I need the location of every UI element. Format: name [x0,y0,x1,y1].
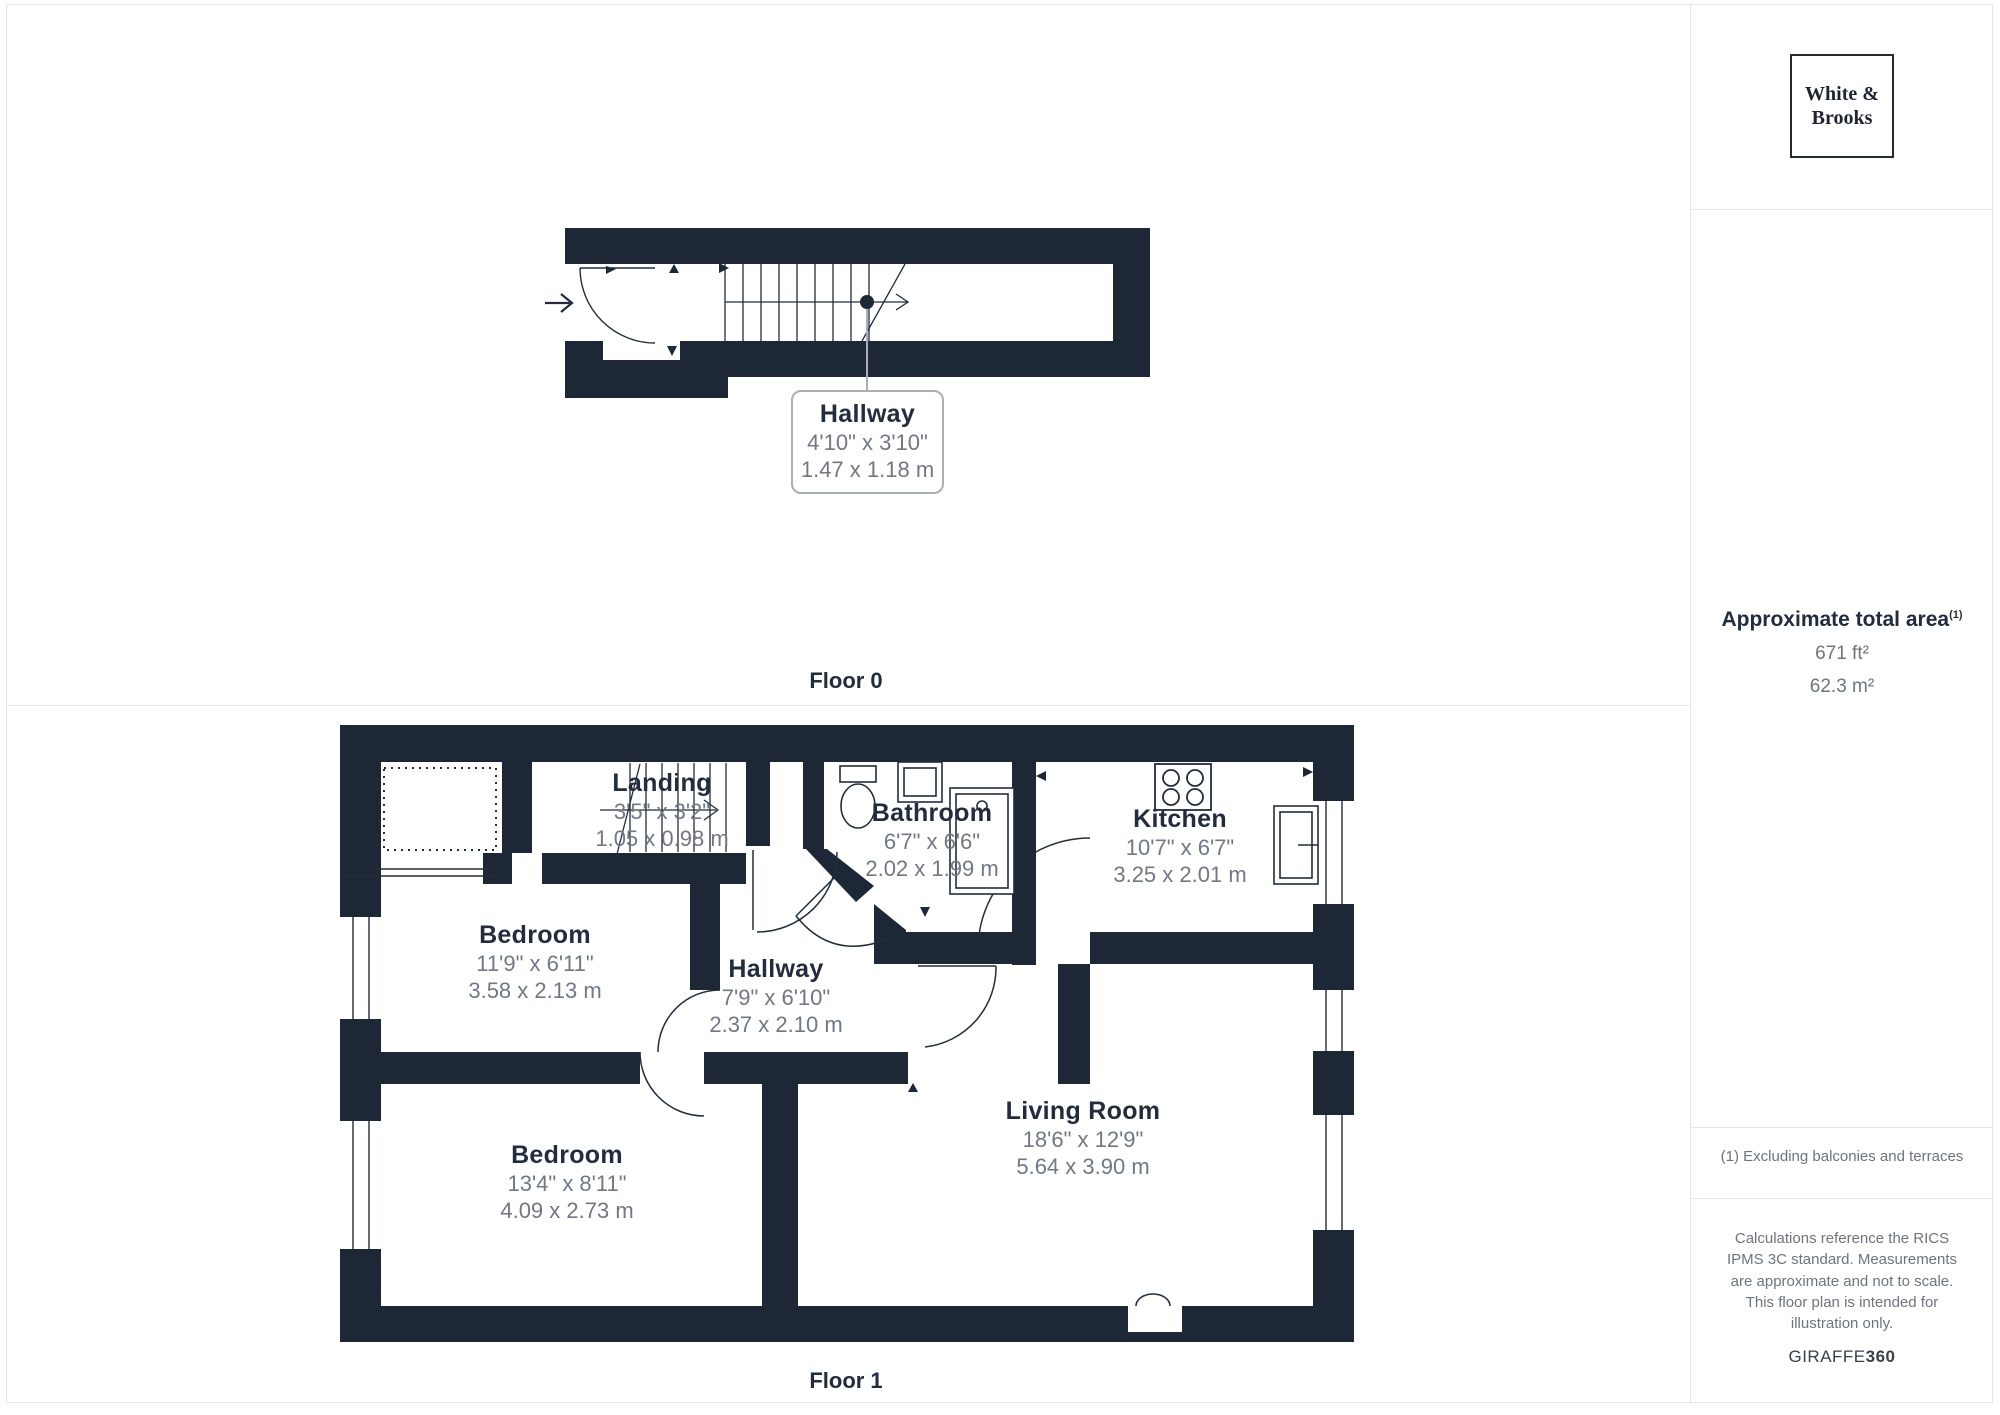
provider-logo: GIRAFFE360 [1690,1347,1994,1367]
total-area-metric: 62.3 m² [1690,676,1994,698]
sidebar-note-divider-top [1690,1127,1994,1128]
room-size-imperial: 18'6" x 12'9" [1006,1126,1161,1153]
room-size-imperial: 3'5" x 3'2" [595,798,728,825]
room-label-landing: Landing 3'5" x 3'2" 1.05 x 0.98 m [595,768,728,852]
room-size-metric: 3.58 x 2.13 m [468,977,601,1004]
room-size-metric: 4.09 x 2.73 m [500,1197,633,1224]
room-label-kitchen: Kitchen 10'7" x 6'7" 3.25 x 2.01 m [1113,804,1246,888]
sidebar-divider [1690,4,1691,1403]
stair-node-dot [860,295,874,309]
provider-suffix: 360 [1866,1347,1896,1366]
room-name: Living Room [1006,1096,1161,1126]
room-name: Kitchen [1113,804,1246,834]
room-name: Hallway [795,399,940,429]
sidebar-note-divider-bottom [1690,1198,1994,1199]
room-name: Bedroom [500,1140,633,1170]
floorplan-page: Hallway 4'10" x 3'10" 1.47 x 1.18 m Floo… [0,0,2000,1415]
fireplace-icon [1128,1294,1182,1332]
room-label-bedroom-bottom: Bedroom 13'4" x 8'11" 4.09 x 2.73 m [500,1140,633,1224]
room-label-bathroom: Bathroom 6'7" x 6'6" 2.02 x 1.99 m [865,798,998,882]
room-size-metric: 2.37 x 2.10 m [709,1011,842,1038]
floor0-hallway-callout: Hallway 4'10" x 3'10" 1.47 x 1.18 m [791,390,944,494]
room-label-hallway: Hallway 7'9" x 6'10" 2.37 x 2.10 m [709,954,842,1038]
room-size-imperial: 10'7" x 6'7" [1113,834,1246,861]
floor0-wall-notch [603,341,680,360]
total-area-imperial: 671 ft² [1690,643,1994,665]
agency-logo-text: White & Brooks [1805,82,1879,130]
floor0-walls [565,228,1150,398]
room-size-imperial: 6'7" x 6'6" [865,828,998,855]
total-area-block: Approximate total area(1) 671 ft² 62.3 m… [1690,608,1994,698]
room-size-metric: 5.64 x 3.90 m [1006,1153,1161,1180]
room-size-imperial: 7'9" x 6'10" [709,984,842,1011]
floor0-stairs [725,264,908,341]
room-name: Hallway [709,954,842,984]
floor0-caption: Floor 0 [809,668,882,694]
floor0-entry-door [580,268,655,343]
room-label-bedroom-top: Bedroom 11'9" x 6'11" 3.58 x 2.13 m [468,920,601,1004]
sidebar-logo-divider [1690,209,1994,210]
agency-logo: White & Brooks [1790,54,1894,158]
bathroom-sink-icon [898,762,942,802]
floor1-caption: Floor 1 [809,1368,882,1394]
footnote-marker: (1) [1949,609,1962,621]
room-name: Landing [595,768,728,798]
kitchen-sink-icon [1274,806,1318,884]
room-size-metric: 2.02 x 1.99 m [865,855,998,882]
room-size-metric: 1.47 x 1.18 m [795,456,940,483]
disclaimer-text: Calculations reference the RICS IPMS 3C … [1717,1228,1967,1334]
total-area-title: Approximate total area(1) [1690,608,1994,632]
callout-leader [866,309,868,392]
exclusion-note: (1) Excluding balconies and terraces [1690,1148,1994,1165]
room-name: Bedroom [468,920,601,950]
room-size-imperial: 11'9" x 6'11" [468,950,601,977]
room-size-metric: 3.25 x 2.01 m [1113,861,1246,888]
room-name: Bathroom [865,798,998,828]
room-size-metric: 1.05 x 0.98 m [595,825,728,852]
room-label-living-room: Living Room 18'6" x 12'9" 5.64 x 3.90 m [1006,1096,1161,1180]
provider-name: GIRAFFE [1788,1347,1865,1366]
dotted-storage-area [384,768,496,850]
entry-arrow-icon [545,294,572,312]
room-size-imperial: 13'4" x 8'11" [500,1170,633,1197]
room-size-imperial: 4'10" x 3'10" [795,429,940,456]
